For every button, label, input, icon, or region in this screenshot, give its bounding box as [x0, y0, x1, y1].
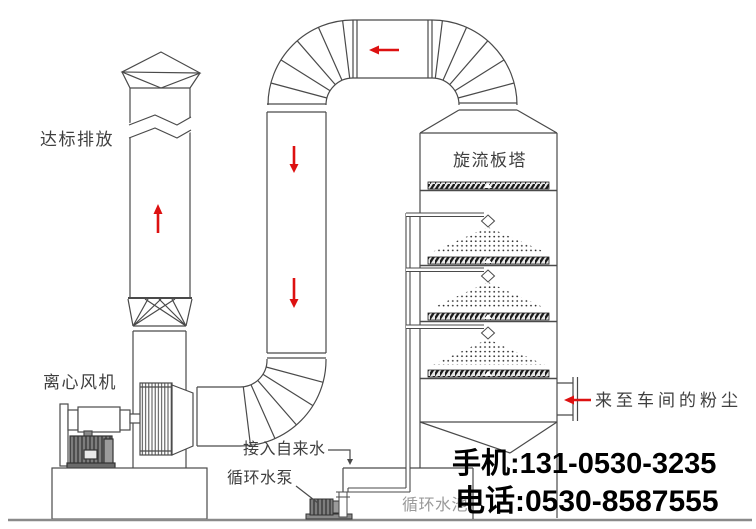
outlet-transition — [128, 298, 192, 331]
label-fan: 离心风机 — [43, 374, 117, 391]
label-pump: 循环水泵 — [227, 471, 293, 487]
label-emission: 达标排放 — [40, 131, 114, 148]
elbow-top-right — [432, 20, 517, 105]
rain-cap — [122, 52, 200, 88]
flow-arrows — [154, 46, 592, 405]
spray-branch — [406, 325, 545, 365]
tower-plate — [420, 182, 557, 191]
circulation-pump — [306, 492, 352, 519]
downcomer-duct — [197, 104, 326, 446]
stack-break-symbol — [127, 114, 193, 139]
elbow-top-left — [268, 20, 353, 105]
flow-arrow-down-duct-2-icon — [290, 278, 299, 308]
process-diagram: 达标排放 旋流板塔 离心风机 接入自来水 循环水泵 来至车间的粉尘 循环水池 手… — [0, 0, 756, 529]
flow-arrow-left-top-duct-icon — [369, 46, 399, 55]
top-duct-run — [268, 20, 517, 105]
label-dust-inlet: 来至车间的粉尘 — [595, 392, 742, 409]
centrifugal-fan — [60, 383, 193, 468]
contact-mobile: 手机:131-0530-3235 — [452, 450, 716, 479]
tap-water-line — [328, 450, 353, 465]
spray-cone — [432, 227, 545, 252]
fan-impeller — [140, 383, 172, 455]
spray-cone — [432, 339, 545, 365]
spray-cone — [432, 282, 545, 308]
fan-motor — [67, 431, 115, 468]
label-tower: 旋流板塔 — [453, 152, 527, 169]
contact-phone: 电话:0530-8587555 — [455, 487, 719, 517]
tower-plate — [420, 370, 557, 379]
flow-arrow-down-duct-1-icon — [290, 146, 299, 173]
spray-branch — [406, 268, 545, 308]
pump-leader-line — [296, 486, 318, 503]
tower-plate — [420, 313, 557, 322]
spray-branch — [406, 213, 545, 252]
tower-plate — [420, 257, 557, 266]
label-tap-water: 接入自来水 — [243, 442, 326, 458]
flow-arrow-up-stack-icon — [154, 204, 163, 233]
elbow-bottom — [197, 359, 326, 446]
fan-inlet-cone — [172, 385, 193, 455]
base-pedestal — [52, 468, 207, 519]
